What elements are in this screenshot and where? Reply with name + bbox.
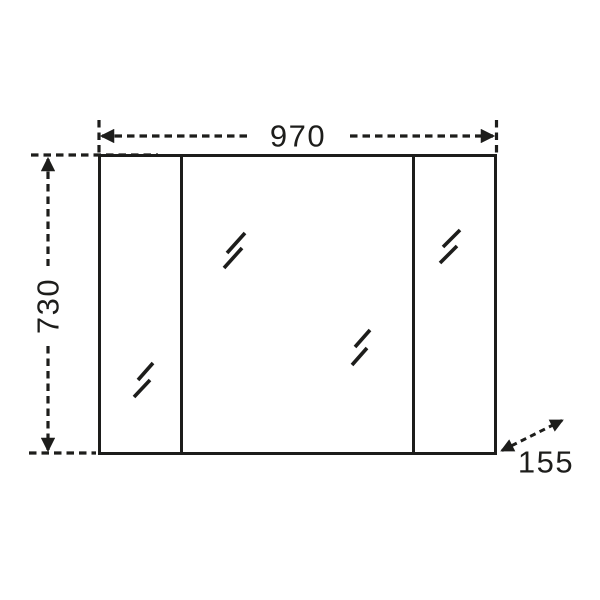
mirror-stroke <box>440 246 457 263</box>
mirror-stroke <box>355 330 370 347</box>
mirror-glyph-right-door <box>440 230 460 263</box>
height-dimension: 730 <box>29 155 158 453</box>
cabinet-outline <box>100 156 496 454</box>
width-dimension-label: 970 <box>270 119 326 154</box>
dimension-drawing: 970 730 155 <box>0 0 600 600</box>
mirror-stroke <box>138 363 153 380</box>
mirror-glyph-center-door-lower <box>352 330 370 365</box>
mirror-stroke <box>134 380 150 397</box>
dimension-diagram-svg: 970 730 155 <box>0 0 600 600</box>
height-dimension-label: 730 <box>31 278 66 334</box>
depth-dimension: 155 <box>502 421 574 480</box>
mirror-stroke <box>443 230 460 247</box>
depth-dimension-label: 155 <box>518 445 574 480</box>
mirror-glyph-left-door <box>134 363 153 397</box>
mirror-glyph-center-door-upper <box>224 233 245 268</box>
width-dimension: 970 <box>99 119 497 155</box>
mirror-stroke <box>352 348 367 365</box>
